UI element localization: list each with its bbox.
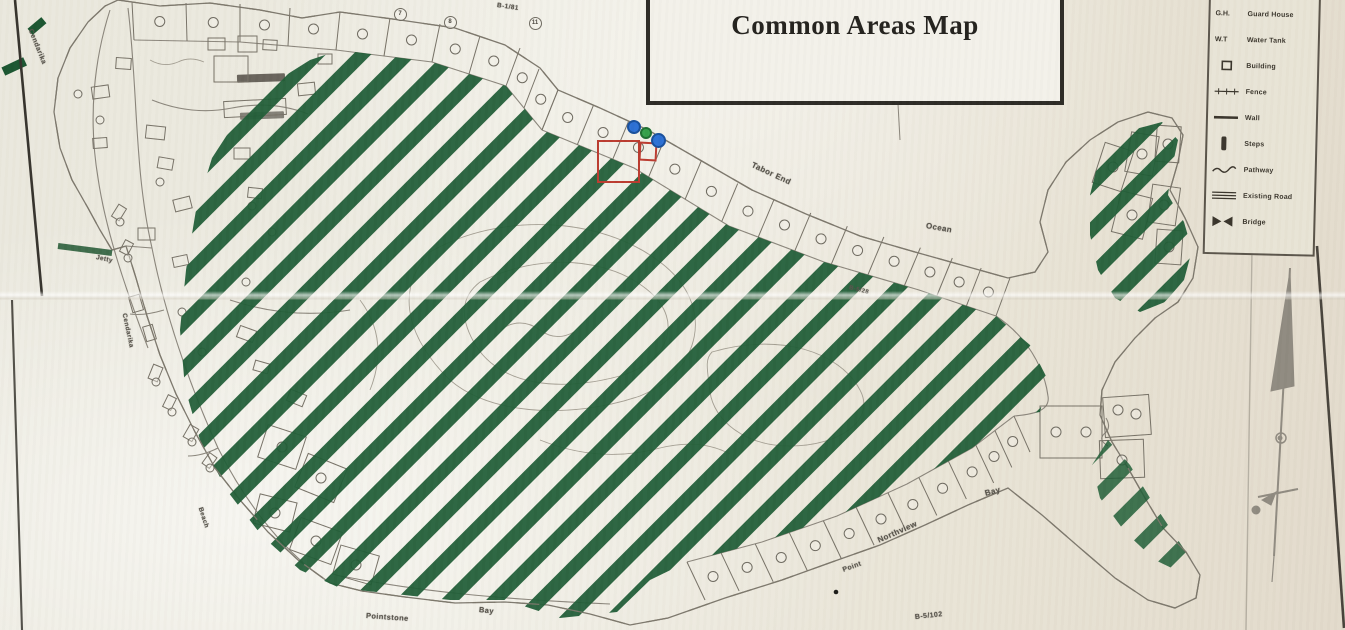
building-outline bbox=[173, 196, 192, 212]
common-area-hatch bbox=[180, 50, 1192, 618]
lot-number-circle bbox=[708, 571, 718, 581]
pathway-icon bbox=[1212, 163, 1244, 176]
lot-number-badge: 8 bbox=[444, 16, 457, 29]
lot-number-circle bbox=[1113, 405, 1123, 415]
lot-number-circle bbox=[309, 24, 319, 34]
building-outline bbox=[163, 395, 177, 411]
lot-divider bbox=[132, 2, 134, 40]
lot-divider bbox=[948, 461, 966, 499]
legend-item-label: Bridge bbox=[1242, 218, 1266, 226]
legend-item-label: Fence bbox=[1246, 88, 1267, 96]
steps-icon bbox=[1212, 136, 1244, 151]
lot-divider bbox=[384, 18, 390, 56]
lot-number-circle bbox=[967, 467, 977, 477]
building-outline bbox=[157, 157, 174, 170]
building-outline bbox=[138, 228, 155, 240]
legend-abbr: G.H. bbox=[1215, 10, 1247, 18]
map-photo: Common Areas Map G.H.Guard HouseW.TWater… bbox=[0, 0, 1345, 630]
lot-divider bbox=[966, 268, 981, 306]
legend-item-fence: Fence bbox=[1213, 78, 1317, 107]
lot-number-circle bbox=[780, 220, 790, 230]
lot-divider bbox=[758, 199, 774, 237]
existing-road-icon bbox=[1211, 189, 1243, 202]
building-outline bbox=[93, 138, 108, 149]
lot-number-badge: 7 bbox=[394, 8, 407, 21]
wall-icon bbox=[1213, 111, 1245, 124]
lot-divider bbox=[1014, 416, 1030, 452]
lot-divider bbox=[722, 184, 738, 222]
lot-divider bbox=[976, 445, 994, 483]
legend-item-label: Wall bbox=[1245, 114, 1260, 121]
lot-number-circle bbox=[124, 254, 132, 262]
legend-item-pathway: Pathway bbox=[1211, 156, 1315, 185]
lot-number-circle bbox=[156, 178, 164, 186]
legend-item-bridge: Bridge bbox=[1210, 208, 1314, 237]
lot-parcel-outline bbox=[1103, 394, 1152, 437]
lot-number-circle bbox=[1008, 437, 1018, 447]
lot-number-circle bbox=[407, 35, 417, 45]
lot-divider bbox=[336, 12, 340, 50]
lot-number-circle bbox=[96, 116, 104, 124]
lot-number-circle bbox=[983, 287, 993, 297]
legend-item-label: Steps bbox=[1244, 140, 1264, 147]
fence-icon bbox=[1213, 85, 1245, 98]
lot-number-circle bbox=[152, 378, 160, 386]
lot-divider bbox=[995, 431, 1012, 468]
building-outline bbox=[145, 125, 165, 140]
lot-divider bbox=[937, 258, 953, 296]
marker-green[interactable] bbox=[640, 127, 652, 139]
lot-number-circle bbox=[450, 44, 460, 54]
lot-divider bbox=[755, 544, 773, 582]
jetty-bar bbox=[58, 246, 112, 253]
lot-number-circle bbox=[563, 113, 573, 123]
lot-divider bbox=[288, 8, 290, 46]
north-arrow bbox=[1252, 268, 1298, 582]
building-outline bbox=[172, 255, 189, 268]
lot-divider bbox=[856, 507, 874, 545]
lot-number-circle bbox=[989, 452, 999, 462]
ink-speck bbox=[834, 590, 839, 595]
lot-number-circle bbox=[844, 529, 854, 539]
marker-blue-1[interactable] bbox=[627, 120, 641, 134]
lot-number-circle bbox=[260, 20, 270, 30]
legend-item-existing-road: Existing Road bbox=[1211, 182, 1315, 211]
lot-number-circle bbox=[853, 246, 863, 256]
legend-abbr: W.T bbox=[1215, 36, 1247, 44]
lot-number-circle bbox=[598, 128, 608, 138]
map-label-bay-south: Bay bbox=[479, 605, 495, 616]
bridge-icon bbox=[1210, 215, 1242, 228]
lot-number-circle bbox=[876, 514, 886, 524]
lot-divider bbox=[996, 278, 1010, 316]
lot-divider bbox=[186, 3, 187, 41]
lot-number-circle bbox=[358, 29, 368, 39]
lot-number-circle bbox=[517, 73, 527, 83]
lot-divider bbox=[432, 24, 440, 62]
lot-number-circle bbox=[908, 499, 918, 509]
lot-number-circle bbox=[116, 218, 124, 226]
lot-number-circle bbox=[816, 234, 826, 244]
lot-divider bbox=[919, 477, 937, 515]
lot-number-circle bbox=[208, 18, 218, 28]
marker-blue-2[interactable] bbox=[651, 133, 666, 148]
lot-number-circle bbox=[1081, 427, 1091, 437]
legend-item-guard-house: G.H.Guard House bbox=[1215, 0, 1319, 29]
lot-divider bbox=[831, 226, 847, 264]
lot-divider bbox=[868, 237, 884, 275]
legend-item-building: Building bbox=[1214, 52, 1318, 81]
lot-number-circle bbox=[188, 438, 196, 446]
map-title-box: Common Areas Map bbox=[646, 0, 1064, 105]
legend-item-label: Guard House bbox=[1247, 10, 1293, 18]
lot-divider bbox=[795, 213, 811, 251]
lot-number-circle bbox=[810, 541, 820, 551]
lot-divider bbox=[721, 553, 739, 591]
lot-number-circle bbox=[670, 164, 680, 174]
lot-divider bbox=[685, 161, 701, 199]
lot-number-circle bbox=[489, 56, 499, 66]
lot-number-circle bbox=[206, 464, 214, 472]
selected-lot-highlight[interactable] bbox=[597, 140, 640, 183]
lot-divider bbox=[469, 36, 480, 74]
legend-item-label: Water Tank bbox=[1247, 36, 1286, 44]
lot-number-circle bbox=[889, 256, 899, 266]
lot-divider bbox=[577, 105, 593, 144]
building-outline bbox=[116, 57, 132, 69]
lot-number-circle bbox=[1051, 427, 1061, 437]
lot-divider bbox=[823, 521, 841, 559]
lot-number-circle bbox=[536, 94, 546, 104]
legend-item-label: Pathway bbox=[1244, 166, 1274, 174]
map-title: Common Areas Map bbox=[731, 10, 979, 101]
lot-number-circle bbox=[74, 90, 82, 98]
legend-item-label: Building bbox=[1246, 62, 1276, 70]
lot-number-circle bbox=[155, 17, 165, 27]
lot-number-circle bbox=[925, 267, 935, 277]
lot-number-badge: 11 bbox=[529, 17, 542, 30]
legend-panel: G.H.Guard HouseW.TWater TankBuildingFenc… bbox=[1203, 0, 1321, 257]
scanned-map-photo: { "title": "Common Areas Map", "legend":… bbox=[0, 0, 1345, 630]
lot-number-circle bbox=[706, 186, 716, 196]
lot-number-circle bbox=[776, 552, 786, 562]
lot-parcel-outline bbox=[1040, 406, 1102, 458]
lot-divider bbox=[789, 533, 807, 571]
lot-number-circle bbox=[742, 562, 752, 572]
legend-item-label: Existing Road bbox=[1243, 192, 1292, 200]
building-outline bbox=[238, 36, 257, 52]
lot-number-circle bbox=[1131, 409, 1141, 419]
legend-item-wall: Wall bbox=[1213, 104, 1317, 133]
building-outline bbox=[208, 38, 225, 50]
lot-divider bbox=[904, 248, 920, 286]
lot-number-circle bbox=[168, 408, 176, 416]
legend-item-water-tank: W.TWater Tank bbox=[1215, 26, 1319, 55]
lot-number-circle bbox=[954, 277, 964, 287]
legend-item-steps: Steps bbox=[1212, 130, 1316, 159]
lot-number-circle bbox=[743, 206, 753, 216]
lot-divider bbox=[687, 562, 705, 600]
building-icon bbox=[1214, 59, 1246, 72]
lot-number-circle bbox=[938, 483, 948, 493]
